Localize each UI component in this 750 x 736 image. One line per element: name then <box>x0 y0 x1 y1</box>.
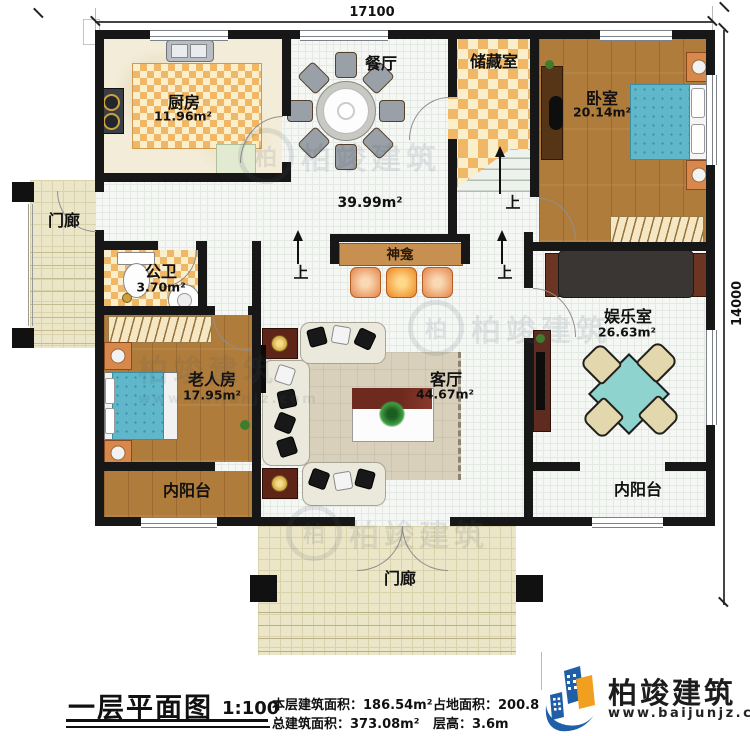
kitchen-sink-basin <box>171 44 188 58</box>
wall-segment <box>524 338 533 526</box>
dimension-right-value: 14000 <box>730 281 745 326</box>
step-arrow-head <box>293 230 303 241</box>
title-underline <box>66 726 270 728</box>
step-arrow-stem <box>297 240 299 264</box>
bedroom-pillow <box>691 124 705 154</box>
wall-segment <box>95 173 291 182</box>
window <box>706 75 717 165</box>
room-area-living: 44.67m² <box>416 387 474 402</box>
wall-segment <box>95 241 158 250</box>
shrine-wall <box>330 234 470 242</box>
room-area-hall: 39.99m² <box>337 195 402 211</box>
elder-wardrobe <box>108 316 212 343</box>
stat-land-area: 占地面积：200.8 <box>433 694 539 713</box>
bedroom-pillow <box>691 88 705 118</box>
shrine-cushion <box>386 267 417 298</box>
tv-icon <box>261 345 266 393</box>
wall-segment <box>252 241 261 526</box>
wall-segment <box>448 30 457 97</box>
shrine-label: 神龛 <box>387 243 414 263</box>
wall-segment <box>448 139 457 241</box>
room-area-elder: 17.95m² <box>183 388 241 403</box>
stove-burner <box>103 113 120 130</box>
porch-left-steps <box>30 240 96 345</box>
dimension-line-top <box>95 21 713 23</box>
sofa-pillow <box>331 325 352 346</box>
bedroom-wardrobe <box>610 216 704 244</box>
window <box>592 517 663 528</box>
stat-total-area: 总建筑面积：373.08m² <box>272 713 419 732</box>
wall-segment <box>95 30 104 182</box>
tv-icon <box>536 352 545 410</box>
room-area-bedroom: 20.14m² <box>573 105 631 120</box>
elder-bed-blanket <box>112 372 164 440</box>
stairs-arrow-head <box>495 146 505 157</box>
bedroom-chair <box>549 96 563 130</box>
step-up-label: 上 <box>497 262 512 283</box>
corner-tick <box>719 2 729 12</box>
wall-segment <box>95 241 104 526</box>
window <box>300 30 388 41</box>
title-underline <box>66 719 268 722</box>
porch-column <box>12 328 34 348</box>
room-label-entertainment: 娱乐室 <box>604 303 652 327</box>
porch-bottom-steps <box>258 600 516 655</box>
extension-line <box>712 6 713 30</box>
wall-segment <box>330 234 339 264</box>
wall-segment <box>282 162 291 182</box>
wall-segment <box>95 517 141 526</box>
porch-column <box>516 575 543 602</box>
room-label-balcony-right: 内阳台 <box>614 476 662 500</box>
sofa-pillow <box>333 471 354 492</box>
wall-segment <box>95 182 104 192</box>
step-arrow-stem <box>501 240 503 264</box>
shrine-cushion <box>350 267 381 298</box>
window <box>141 517 217 528</box>
room-area-bathroom: 3.70m² <box>136 280 185 295</box>
stairs-arrow-stem <box>499 156 501 194</box>
floor-plan-canvas: 17100 14000 <box>0 0 750 736</box>
shrine-cushion <box>422 267 453 298</box>
wall-segment <box>217 517 355 526</box>
bedroom-bed-blanket <box>630 84 690 160</box>
plant-icon <box>545 60 554 69</box>
end-table-ornament <box>271 475 288 492</box>
plan-scale: 1:100 <box>222 698 279 719</box>
wall-segment <box>282 30 291 116</box>
room-area-entertainment: 26.63m² <box>598 325 656 340</box>
stat-floor-height: 层高：3.6m <box>433 713 509 732</box>
window <box>706 330 717 425</box>
step-up-label: 上 <box>293 262 308 283</box>
plant-icon <box>379 401 405 427</box>
end-table-ornament <box>271 335 288 352</box>
dimension-top-value: 17100 <box>349 5 394 20</box>
room-label-porch-bottom: 门廊 <box>384 565 416 589</box>
floor-drain <box>122 293 132 303</box>
room-label-balcony-left: 内阳台 <box>163 477 211 501</box>
wall-segment <box>95 306 215 315</box>
corner-tick <box>33 8 43 18</box>
porch-column <box>12 182 34 202</box>
dining-table-center <box>337 102 355 120</box>
wall-segment <box>524 462 580 471</box>
step-arrow-head <box>497 230 507 241</box>
wall-segment <box>450 517 592 526</box>
wall-segment <box>663 517 715 526</box>
room-label-dining: 餐厅 <box>365 50 397 74</box>
brand-logo-icon <box>540 665 604 733</box>
wall-segment <box>95 230 104 241</box>
room-label-elder: 老人房 <box>188 366 236 390</box>
plant-icon <box>240 420 250 430</box>
ent-sofa <box>558 250 694 298</box>
window <box>150 30 228 41</box>
elder-nightstand <box>104 342 132 370</box>
room-area-kitchen: 11.96m² <box>154 109 212 124</box>
wall-segment <box>530 30 539 197</box>
wall-segment <box>530 242 715 251</box>
room-label-storage: 储藏室 <box>470 48 518 72</box>
elder-pillow <box>105 378 115 404</box>
stove-burner <box>103 94 120 111</box>
wall-segment <box>461 234 470 264</box>
dining-chair <box>335 52 357 78</box>
wall-segment <box>665 462 715 471</box>
brand-url: www.baijunjz.com <box>608 706 750 721</box>
wall-segment <box>524 232 533 288</box>
sofa-pillow <box>276 388 297 409</box>
wall-segment <box>196 241 207 250</box>
kitchen-sink-basin <box>190 44 207 58</box>
porch-column <box>250 575 277 602</box>
wall-segment <box>95 462 215 471</box>
room-label-bathroom: 公卫 <box>145 258 177 282</box>
porch-left-railing <box>28 204 33 326</box>
elder-pillow <box>105 408 115 434</box>
dining-chair <box>379 100 405 122</box>
room-label-porch-left: 门廊 <box>48 207 80 231</box>
dining-chair <box>335 144 357 170</box>
window <box>600 30 672 41</box>
dimension-line-right <box>723 30 725 605</box>
stairs-up-label: 上 <box>505 192 520 213</box>
stat-floor-area: 本层建筑面积：186.54m² <box>272 694 432 713</box>
